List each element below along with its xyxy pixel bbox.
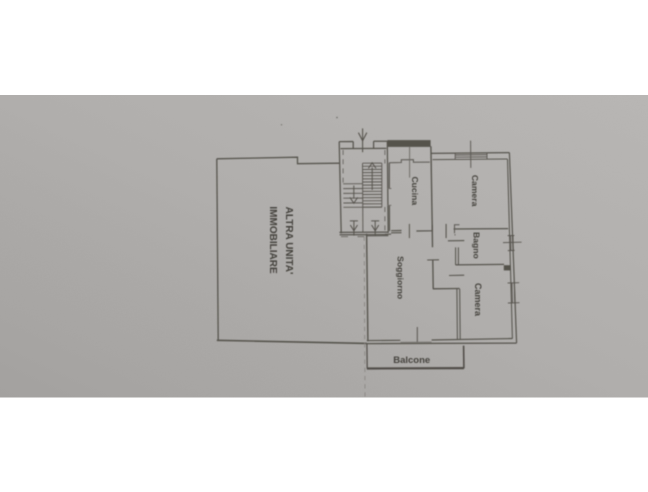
svg-text:Camera: Camera bbox=[470, 175, 480, 207]
svg-text:Balcone: Balcone bbox=[393, 355, 430, 366]
svg-text:Camera: Camera bbox=[473, 283, 483, 317]
svg-text:Cucina: Cucina bbox=[410, 176, 420, 205]
svg-text:Soggiorno: Soggiorno bbox=[395, 256, 405, 299]
svg-text:ALTRA UNITA': ALTRA UNITA' bbox=[283, 207, 294, 275]
svg-text:Bagno: Bagno bbox=[471, 232, 481, 259]
svg-text:IMMOBILIARE: IMMOBILIARE bbox=[267, 206, 278, 274]
